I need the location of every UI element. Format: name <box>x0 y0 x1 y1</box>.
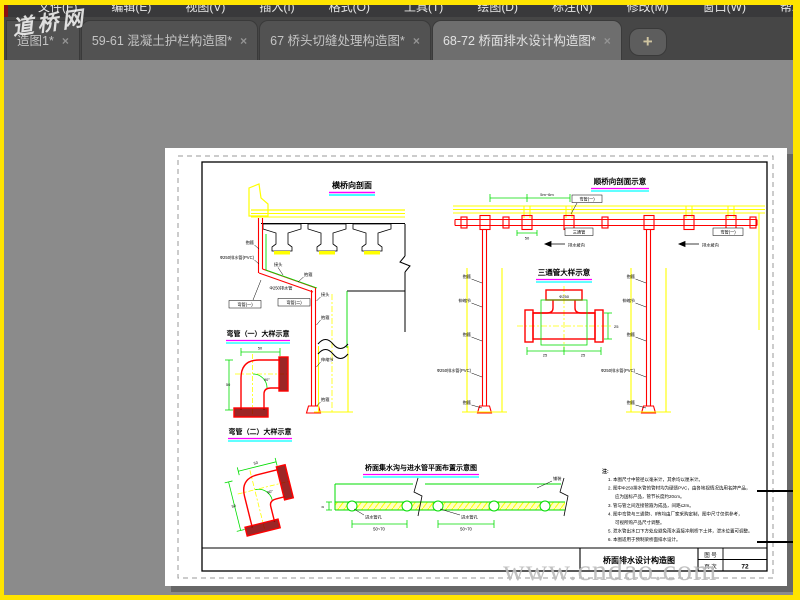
deck-lines <box>453 206 765 330</box>
menu-item-help[interactable]: 帮助(H) <box>780 5 793 15</box>
svg-text:25: 25 <box>581 353 586 358</box>
gutter-hatch <box>335 502 565 510</box>
expansion-waves <box>318 340 348 359</box>
svg-text:Φ250: Φ250 <box>559 294 570 299</box>
svg-text:4. 图中弯管与三通管Ⅰ、Ⅱ等均由厂家采购定制，图中尺寸仅供: 4. 图中弯管与三通管Ⅰ、Ⅱ等均由厂家采购定制，图中尺寸仅供参考， <box>608 510 743 517</box>
d3-title: 三通管大样示意 <box>538 267 591 277</box>
plan-gutter-inlets: 桥面集水沟与进水管平面布置示意图 <box>321 463 568 532</box>
svg-text:抱箍: 抱箍 <box>463 399 472 406</box>
menu-bar: 文件(F) 编辑(E) 视图(V) 插入(I) 格式(O) 工具(T) 绘图(D… <box>4 5 793 17</box>
svg-text:50: 50 <box>231 504 236 509</box>
svg-text:抱箍: 抱箍 <box>463 331 472 338</box>
edge-tick-mark <box>757 490 797 492</box>
svg-text:弯管(一): 弯管(一) <box>720 229 736 236</box>
svg-text:伸缩节: 伸缩节 <box>622 297 635 304</box>
svg-text:铺装: 铺装 <box>553 475 562 482</box>
svg-text:6. 本图适用于预制梁桥面排水设计。: 6. 本图适用于预制梁桥面排水设计。 <box>608 536 681 543</box>
detail-tee-pipe: 三通管大样示意 Φ250 <box>517 267 619 358</box>
tab-drawing-59-61[interactable]: 59-61 混凝土护栏构造图* × <box>81 20 258 60</box>
svg-text:抱箍: 抱箍 <box>246 239 255 246</box>
close-icon[interactable]: × <box>604 21 611 61</box>
svg-text:90°: 90° <box>264 378 270 382</box>
document-tab-bar: 造图1* × 59-61 混凝土护栏构造图* × 67 桥头切缝处理构造图* ×… <box>4 17 793 60</box>
tab-label: 68-72 桥面排水设计构造图* <box>443 21 596 61</box>
svg-text:注:: 注: <box>602 468 609 475</box>
cad-drawing: 横桥向剖面 <box>165 148 787 586</box>
svg-text:Φ250排水管(PVC): Φ250排水管(PVC) <box>601 367 636 374</box>
svg-text:弯管(二): 弯管(二) <box>286 299 302 306</box>
tab-drawing-67[interactable]: 67 桥头切缝处理构造图* × <box>259 20 431 60</box>
svg-text:抱箍: 抱箍 <box>321 314 330 321</box>
svg-text:50: 50 <box>253 461 258 466</box>
svg-text:Φ250排水管: Φ250排水管 <box>270 285 293 292</box>
svg-text:三通管: 三通管 <box>573 229 586 236</box>
elbow-body <box>234 357 288 417</box>
t-beams <box>263 224 391 251</box>
svg-text:Φ250排水管(PVC): Φ250排水管(PVC) <box>437 367 472 374</box>
svg-text:Φ250排水管(PVC): Φ250排水管(PVC) <box>220 254 255 261</box>
close-icon[interactable]: × <box>413 21 420 61</box>
elbow-2-group: 50 50 90° <box>221 455 299 539</box>
d1-title: 横桥向剖面 <box>332 180 372 190</box>
svg-text:50: 50 <box>226 383 230 387</box>
site-watermark-url: www.cndao.com <box>503 554 717 588</box>
svg-text:伸缩节: 伸缩节 <box>321 356 334 363</box>
svg-text:排水坡向: 排水坡向 <box>702 242 719 249</box>
menu-item-insert[interactable]: 插入(I) <box>259 5 294 15</box>
svg-text:50: 50 <box>525 236 530 241</box>
svg-text:8: 8 <box>321 506 325 508</box>
section-cross-bridge: 横桥向剖面 <box>220 180 410 414</box>
svg-text:抱箍: 抱箍 <box>627 399 636 406</box>
svg-text:90°: 90° <box>267 489 274 494</box>
svg-text:抱箍: 抱箍 <box>321 396 330 403</box>
svg-text:可视所购产品尺寸调整。: 可视所购产品尺寸调整。 <box>615 519 665 526</box>
svg-text:25: 25 <box>614 324 619 329</box>
svg-text:进水管孔: 进水管孔 <box>461 514 479 521</box>
d5-title: 弯管（二）大样示意 <box>229 427 292 436</box>
tee-dimensions <box>527 300 612 355</box>
svg-text:抱箍: 抱箍 <box>304 271 313 278</box>
section-longitudinal: 顺桥向剖面示意 <box>437 176 765 413</box>
svg-text:伸缩节: 伸缩节 <box>458 297 471 304</box>
d4-title: 弯管（一）大样示意 <box>227 329 290 338</box>
svg-text:抱箍: 抱箍 <box>627 331 636 338</box>
svg-text:1. 本图尺寸中管径以毫米计，其余均以厘米计。: 1. 本图尺寸中管径以毫米计，其余均以厘米计。 <box>608 476 703 483</box>
app-window: 文件(F) 编辑(E) 视图(V) 插入(I) 格式(O) 工具(T) 绘图(D… <box>0 0 800 600</box>
new-tab-button[interactable]: + <box>629 28 667 56</box>
svg-text:25: 25 <box>543 353 548 358</box>
svg-text:50~70: 50~70 <box>373 527 385 532</box>
bearing-pads <box>274 251 380 255</box>
svg-text:5. 泄水管出水口下方处应避免雨水直接冲刷桥下土体，泄水位置: 5. 泄水管出水口下方处应避免雨水直接冲刷桥下土体，泄水位置可调整。 <box>608 528 753 535</box>
notes-block: 注: 1. 本图尺寸中管径以毫米计，其余均以厘米计。 2. 图中Φ250排水管的… <box>602 468 753 543</box>
detail-elbow-2: 弯管（二）大样示意 <box>221 427 299 538</box>
svg-text:弯管(一): 弯管(一) <box>237 301 253 308</box>
menu-item-dimension[interactable]: 标注(N) <box>552 5 593 15</box>
d6-title: 桥面集水沟与进水管平面布置示意图 <box>365 463 477 472</box>
drawing-sheet: 横桥向剖面 <box>165 148 787 586</box>
menu-item-edit[interactable]: 编辑(E) <box>111 5 151 15</box>
svg-text:接头: 接头 <box>321 291 329 298</box>
svg-text:应为国标产品，管节长度约20cm。: 应为国标产品，管节长度约20cm。 <box>615 493 685 500</box>
parapet <box>249 184 268 216</box>
svg-text:抱箍: 抱箍 <box>463 273 472 280</box>
menu-item-modify[interactable]: 修改(M) <box>627 5 669 15</box>
menu-item-draw[interactable]: 绘图(D) <box>477 5 518 15</box>
svg-text:排水坡向: 排水坡向 <box>568 242 585 249</box>
svg-text:50~70: 50~70 <box>460 527 472 532</box>
svg-text:50: 50 <box>258 347 262 351</box>
tab-drawing-68-72-active[interactable]: 68-72 桥面排水设计构造图* × <box>432 20 622 60</box>
tab-label: 59-61 混凝土护栏构造图* <box>92 21 232 61</box>
menu-item-view[interactable]: 视图(V) <box>185 5 225 15</box>
menu-item-window[interactable]: 窗口(W) <box>703 5 746 15</box>
page-value: 72 <box>741 564 749 571</box>
d2-title: 顺桥向剖面示意 <box>594 176 647 186</box>
menu-item-tools[interactable]: 工具(T) <box>404 5 443 15</box>
edge-tick-mark <box>757 541 797 543</box>
detail-elbow-1: 弯管（一）大样示意 50 50 90° <box>225 329 290 417</box>
close-icon[interactable]: × <box>240 21 247 61</box>
tab-label: 67 桥头切缝处理构造图* <box>270 21 405 61</box>
svg-text:进水管孔: 进水管孔 <box>365 514 383 521</box>
svg-text:2. 图中Φ250排水管的管材均为硬质PVC，由各地视情况选: 2. 图中Φ250排水管的管材均为硬质PVC，由各地视情况选用名牌产品， <box>608 485 750 492</box>
menu-row: 文件(F) 编辑(E) 视图(V) 插入(I) 格式(O) 工具(T) 绘图(D… <box>4 5 793 15</box>
svg-text:接头: 接头 <box>274 261 282 268</box>
svg-text:抱箍: 抱箍 <box>627 273 636 280</box>
svg-text:3. 管与管之间连接管箍为成品，间距≤2m。: 3. 管与管之间连接管箍为成品，间距≤2m。 <box>608 502 694 509</box>
svg-text:5m~6m: 5m~6m <box>540 192 554 197</box>
menu-item-format[interactable]: 格式(O) <box>329 5 370 15</box>
svg-text:弯管(一): 弯管(一) <box>579 196 595 203</box>
sleeve <box>314 346 353 412</box>
d1-labels: 抱箍 Φ250排水管(PVC) 接头 抱箍 弯管(一) Φ250排水管 弯管(二… <box>220 239 334 406</box>
